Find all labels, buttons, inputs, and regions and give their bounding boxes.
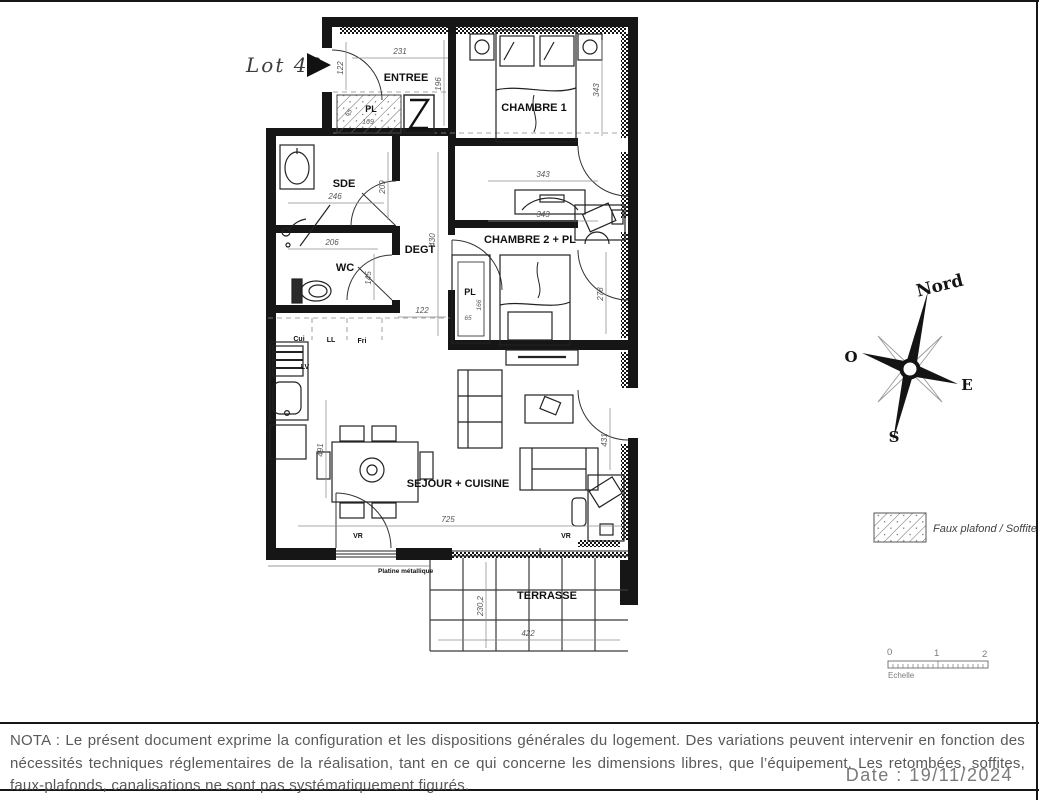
dim-422: 422: [521, 629, 535, 638]
dim-246: 246: [327, 192, 342, 201]
nota-band: NOTA : Le présent document exprime la co…: [0, 722, 1039, 791]
dim-343-b: 343: [536, 210, 550, 219]
dim-169: 169: [362, 119, 374, 126]
dim-145: 145: [364, 271, 373, 285]
sheet-border-right: [1036, 0, 1038, 800]
scale-1: 1: [934, 648, 939, 659]
scale-bar: 0 1 2 Echelle: [887, 647, 988, 680]
dim-209: 209: [378, 180, 387, 195]
dim-122-entree: 122: [336, 61, 345, 75]
legend-label: Faux plafond / Soffite: [933, 523, 1037, 535]
dim-725: 725: [441, 515, 455, 524]
dim-343-a: 343: [536, 170, 550, 179]
nota-paragraph: NOTA : Le présent document exprime la co…: [10, 730, 1025, 798]
room-label-entree: ENTREE: [384, 72, 429, 84]
date-label: Date : 19/11/2024: [846, 765, 1013, 786]
furniture-chambre1: [470, 30, 602, 142]
scale-caption: Echelle: [888, 671, 915, 680]
compass-west-label: O: [844, 348, 857, 366]
room-label-wc: WC: [336, 262, 354, 274]
furniture-sejour: [317, 350, 624, 541]
floor-plan-drawing: Lot 43: [0, 0, 1039, 723]
appliance-fri: Fri: [358, 338, 367, 345]
label-vr-1: VR: [353, 533, 363, 540]
compass-east-label: E: [961, 376, 972, 394]
dim-430: 430: [428, 233, 437, 247]
floor-plan-sheet: Lot 43: [0, 0, 1039, 800]
room-label-sejour: SEJOUR + CUISINE: [407, 478, 509, 490]
compass-north-label: Nord: [914, 271, 965, 302]
label-vr-2: VR: [561, 533, 571, 540]
legend-faux-plafond: Faux plafond / Soffite: [874, 513, 1037, 542]
room-label-pl2: PL: [464, 287, 476, 297]
dim-231: 231: [392, 47, 406, 56]
compass-south-label: S: [889, 428, 900, 446]
scale-2: 2: [982, 649, 987, 660]
terrasse: [268, 558, 628, 651]
appliance-cui: Cui: [293, 336, 304, 343]
dim-343-ch1: 343: [592, 83, 601, 97]
dim-65-pl2: 65: [464, 315, 472, 322]
sheet-border-top: [0, 0, 1039, 2]
fixtures-wc: [292, 279, 331, 303]
dim-122-degt: 122: [415, 306, 429, 315]
room-label-terrasse: TERRASSE: [517, 590, 577, 602]
appliance-labels: Cui LL Fri LV VR VR Platine métallique: [293, 336, 571, 575]
dim-166: 166: [476, 299, 483, 310]
dim-278: 278: [596, 287, 605, 302]
room-label-pl1: PL: [365, 104, 377, 114]
electrical-panel-icon: [410, 100, 428, 128]
compass-rose: Nord O E S: [844, 271, 972, 446]
room-label-chambre1: CHAMBRE 1: [501, 102, 566, 114]
legend-hatch-swatch: [874, 513, 926, 542]
lot-label: Lot 43: [245, 53, 331, 77]
appliance-ll: LL: [327, 337, 336, 344]
appliance-lv: LV: [301, 364, 310, 371]
dim-491: 491: [316, 443, 325, 456]
room-label-chambre2: CHAMBRE 2 + PL: [484, 234, 576, 246]
dim-196: 196: [434, 77, 443, 91]
dim-431: 431: [600, 433, 609, 446]
dim-206: 206: [324, 238, 339, 247]
scale-0: 0: [887, 647, 892, 658]
label-platine-metallique: Platine métallique: [378, 568, 434, 575]
dim-230-2: 230,2: [476, 595, 485, 617]
room-label-sde: SDE: [333, 178, 356, 190]
